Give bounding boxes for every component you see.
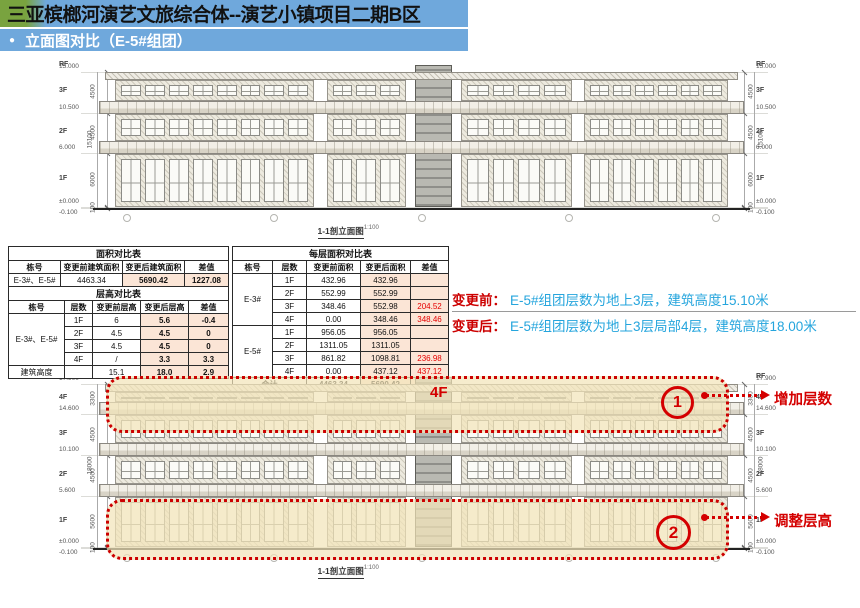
- subtitle-bar: ● 立面图对比（E-5#组团）: [0, 29, 468, 51]
- window: [703, 119, 722, 137]
- core: [415, 65, 452, 207]
- window: [590, 85, 609, 96]
- table-cell: 建筑高度: [9, 366, 65, 379]
- table-cell: 4.5: [93, 327, 141, 340]
- ornband: [99, 443, 744, 456]
- wallseg: [115, 154, 314, 207]
- table-cell: 1098.81: [361, 352, 411, 365]
- table-cell: 4.5: [141, 340, 189, 353]
- table-cell: 6: [93, 314, 141, 327]
- slide: 三亚槟榔河演艺文旅综合体--演艺小镇项目二期B区 ● 立面图对比（E-5#组团）…: [0, 0, 860, 608]
- ornband: [99, 141, 744, 154]
- window: [241, 461, 261, 479]
- window: [681, 159, 700, 202]
- table-cell: 348.46: [361, 313, 411, 326]
- rdim: 15100: [87, 113, 94, 165]
- vdim: [744, 384, 745, 548]
- note-after: 变更后： E-5#组团层数为地上3层局部4层，建筑高度18.00米: [452, 312, 856, 337]
- window: [658, 159, 677, 202]
- table-cell: 956.05: [361, 326, 411, 339]
- window: [681, 85, 700, 96]
- highlight-box-4f: [106, 376, 729, 433]
- ornband: [99, 101, 744, 114]
- lvl-name: RF: [756, 373, 765, 380]
- table-cell: 3F: [273, 352, 307, 365]
- window: [264, 85, 284, 96]
- window: [380, 85, 400, 96]
- window: [544, 461, 566, 479]
- window: [380, 119, 400, 137]
- table-cell: 0.00: [307, 313, 361, 326]
- table-cell: 552.99: [307, 287, 361, 300]
- floor-4f-label: 4F: [430, 384, 448, 401]
- window: [544, 85, 566, 96]
- table-cell: 层数: [273, 261, 307, 274]
- bubble: [565, 214, 573, 222]
- window: [380, 461, 400, 479]
- lvl-name: 3F: [59, 430, 67, 437]
- bubble: [712, 214, 720, 222]
- area-comparison-table: 面积对比表栋号变更前建筑面积变更后建筑面积差值E-3#、E-5#4463.345…: [8, 246, 229, 287]
- window: [288, 159, 308, 202]
- window: [493, 461, 515, 479]
- floor-area-comparison-table: 每层面积对比表栋号层数变更前面积变更后面积差值E-3#1F432.96432.9…: [232, 246, 449, 391]
- arrow-line-2: [706, 516, 763, 519]
- table-cell: 层数: [65, 301, 93, 314]
- table-cell: 1F: [273, 326, 307, 339]
- wallseg: [584, 80, 728, 101]
- lvl-name: RF: [59, 61, 68, 68]
- window: [217, 159, 237, 202]
- window: [635, 85, 654, 96]
- window: [613, 85, 632, 96]
- rdim: 4500: [748, 106, 755, 158]
- window: [333, 119, 353, 137]
- wallseg: [115, 80, 314, 101]
- table-cell: 432.96: [361, 274, 411, 287]
- table-cell: [411, 287, 449, 300]
- wallseg: [327, 114, 407, 142]
- window: [681, 119, 700, 137]
- lvl-elev: -0.100: [756, 209, 798, 216]
- drawing-scale: 1:100: [364, 225, 379, 231]
- window: [467, 461, 489, 479]
- lvl-name: 4F: [59, 394, 67, 401]
- window: [193, 85, 213, 96]
- window: [241, 119, 261, 137]
- window: [467, 85, 489, 96]
- table-cell: 2F: [65, 327, 93, 340]
- table-cell: 1F: [273, 274, 307, 287]
- wallseg: [327, 456, 407, 484]
- table-cell: 差值: [411, 261, 449, 274]
- wallseg: [461, 80, 571, 101]
- window: [333, 159, 353, 202]
- table-cell: 204.52: [411, 300, 449, 313]
- window: [467, 159, 489, 202]
- lvl-elev: 10.500: [756, 104, 798, 111]
- ornband: [99, 484, 744, 497]
- window: [518, 461, 540, 479]
- table-cell: 1227.08: [185, 274, 229, 287]
- window: [467, 119, 489, 137]
- window: [121, 159, 141, 202]
- window: [635, 159, 654, 202]
- table-cell: 432.96: [307, 274, 361, 287]
- table-cell: /: [93, 353, 141, 366]
- lvl-name: 2F: [59, 128, 67, 135]
- wallseg: [584, 456, 728, 484]
- window: [703, 159, 722, 202]
- rdim: 18000: [758, 439, 765, 491]
- window: [169, 159, 189, 202]
- window: [681, 461, 700, 479]
- drawing-scale: 1:100: [364, 565, 379, 571]
- table-cell: 每层面积对比表: [233, 247, 449, 261]
- rdim: 18000: [87, 439, 94, 491]
- window: [121, 85, 141, 96]
- window: [193, 119, 213, 137]
- window: [703, 461, 722, 479]
- window: [590, 159, 609, 202]
- window: [169, 461, 189, 479]
- table-cell: 3.3: [189, 353, 229, 366]
- table-cell: 5690.42: [123, 274, 185, 287]
- table-cell: 变更前层高: [93, 301, 141, 314]
- rdim: 4500: [748, 449, 755, 501]
- window: [264, 119, 284, 137]
- note-before-label: 变更前：: [452, 289, 506, 309]
- window: [613, 159, 632, 202]
- window: [544, 159, 566, 202]
- table-cell: 2F: [273, 339, 307, 352]
- window: [635, 119, 654, 137]
- window: [264, 159, 284, 202]
- lvl-elev: ±0.000: [756, 198, 798, 205]
- window: [590, 461, 609, 479]
- change-notes: 变更前： E-5#组团层数为地上3层，建筑高度15.10米 变更后： E-5#组…: [452, 286, 856, 337]
- lvl-name: 3F: [756, 87, 764, 94]
- callout-circle-2: 2: [656, 515, 691, 550]
- gnd-line: [93, 208, 750, 210]
- window: [544, 119, 566, 137]
- lvl-name: 3F: [756, 430, 764, 437]
- window: [356, 159, 376, 202]
- table-cell: 2F: [273, 287, 307, 300]
- window: [613, 119, 632, 137]
- window: [288, 85, 308, 96]
- window: [145, 85, 165, 96]
- table-cell: 面积对比表: [9, 247, 229, 261]
- lvl-name: 2F: [59, 471, 67, 478]
- window: [288, 119, 308, 137]
- window: [518, 159, 540, 202]
- table-cell: 变更前面积: [307, 261, 361, 274]
- table-cell: 差值: [185, 261, 229, 274]
- table-cell: 变更后面积: [361, 261, 411, 274]
- page-title: 三亚槟榔河演艺文旅综合体--演艺小镇项目二期B区: [0, 0, 420, 27]
- window: [658, 461, 677, 479]
- vdim: [107, 72, 108, 208]
- wallseg: [461, 154, 571, 207]
- lvl-elev: -0.100: [756, 549, 798, 556]
- annotation-adjust-height: 调整层高: [774, 510, 832, 531]
- table-cell: E-5#: [233, 326, 273, 378]
- window: [217, 119, 237, 137]
- drawing-caption: 1-1剖立面图 1:100: [318, 565, 364, 579]
- table-cell: 4463.34: [61, 274, 123, 287]
- table-cell: E-3#、E-5#: [9, 314, 65, 366]
- table-cell: 栋号: [233, 261, 273, 274]
- bullet-icon: ●: [0, 35, 25, 46]
- window: [241, 85, 261, 96]
- table-cell: [65, 366, 93, 379]
- title-bar: 三亚槟榔河演艺文旅综合体--演艺小镇项目二期B区: [0, 0, 468, 27]
- window: [613, 461, 632, 479]
- table-cell: 4.5: [93, 340, 141, 353]
- table-cell: 5.6: [141, 314, 189, 327]
- window: [217, 85, 237, 96]
- bubble: [123, 214, 131, 222]
- table-cell: 变更后层高: [141, 301, 189, 314]
- rdim: 15100: [758, 113, 765, 165]
- window: [264, 461, 284, 479]
- window: [121, 119, 141, 137]
- table-cell: 348.46: [307, 300, 361, 313]
- bubble: [418, 214, 426, 222]
- note-before-text: E-5#组团层数为地上3层，建筑高度15.10米: [510, 289, 769, 309]
- bubble: [270, 214, 278, 222]
- wallseg: [115, 456, 314, 484]
- table-cell: 栋号: [9, 261, 61, 274]
- table-cell: 4F: [273, 313, 307, 326]
- table-cell: 层高对比表: [9, 287, 229, 301]
- table-cell: 1311.05: [307, 339, 361, 352]
- table-cell: 3F: [65, 340, 93, 353]
- window: [145, 119, 165, 137]
- table-cell: [411, 326, 449, 339]
- table-cell: 栋号: [9, 301, 65, 314]
- window: [169, 85, 189, 96]
- wallseg: [327, 80, 407, 101]
- elevation-before-drawing: 15.000RF15.000RF10.5003F10.5003F6.0002F6…: [55, 60, 800, 238]
- wallseg: [115, 114, 314, 142]
- window: [169, 119, 189, 137]
- window: [217, 461, 237, 479]
- wallseg: [461, 114, 571, 142]
- table-cell: [411, 339, 449, 352]
- table-cell: 4.5: [141, 327, 189, 340]
- table-cell: 956.05: [307, 326, 361, 339]
- window: [333, 461, 353, 479]
- window: [703, 85, 722, 96]
- table-cell: 差值: [189, 301, 229, 314]
- section-title: 立面图对比（E-5#组团）: [25, 30, 192, 51]
- table-cell: [411, 274, 449, 287]
- table-cell: E-3#、E-5#: [9, 274, 61, 287]
- table-cell: 变更后建筑面积: [123, 261, 185, 274]
- note-before: 变更前： E-5#组团层数为地上3层，建筑高度15.10米: [452, 286, 856, 312]
- table-cell: 1F: [65, 314, 93, 327]
- lvl-name: 3F: [59, 87, 67, 94]
- window: [193, 461, 213, 479]
- lvl-name: RF: [756, 61, 765, 68]
- table-cell: 变更前建筑面积: [61, 261, 123, 274]
- window: [518, 119, 540, 137]
- window: [145, 159, 165, 202]
- wallseg: [584, 154, 728, 207]
- table-cell: 552.98: [361, 300, 411, 313]
- window: [356, 119, 376, 137]
- drawing-caption: 1-1剖立面图 1:100: [318, 225, 364, 239]
- lvl-name: 1F: [59, 517, 67, 524]
- window: [658, 85, 677, 96]
- note-after-text: E-5#组团层数为地上3层局部4层，建筑高度18.00米: [510, 315, 817, 335]
- annotation-add-floors: 增加层数: [774, 388, 832, 409]
- window: [121, 461, 141, 479]
- window: [635, 461, 654, 479]
- vdim: [97, 72, 98, 208]
- window: [493, 85, 515, 96]
- table-cell: 348.46: [411, 313, 449, 326]
- lvl-name: 1F: [756, 175, 764, 182]
- vdim: [744, 72, 745, 208]
- window: [493, 159, 515, 202]
- window: [493, 119, 515, 137]
- window: [288, 461, 308, 479]
- wallseg: [584, 114, 728, 142]
- lvl-elev: ±0.000: [756, 538, 798, 545]
- table-cell: 1311.05: [361, 339, 411, 352]
- table-cell: 0: [189, 327, 229, 340]
- parapet: [105, 72, 738, 80]
- window: [658, 119, 677, 137]
- window: [193, 159, 213, 202]
- window: [356, 461, 376, 479]
- arrow-line-1: [706, 394, 763, 397]
- callout-circle-1: 1: [661, 386, 694, 419]
- window: [380, 159, 400, 202]
- table-cell: 552.99: [361, 287, 411, 300]
- table-cell: 3.3: [141, 353, 189, 366]
- height-comparison-table: 层高对比表栋号层数变更前层高变更后层高差值E-3#、E-5#1F65.6-0.4…: [8, 286, 229, 379]
- note-after-label: 变更后：: [452, 315, 506, 335]
- arrow-head-2: [761, 512, 770, 522]
- table-cell: 236.98: [411, 352, 449, 365]
- table-cell: 861.82: [307, 352, 361, 365]
- window: [590, 119, 609, 137]
- table-cell: 0: [189, 340, 229, 353]
- lvl-name: 1F: [59, 175, 67, 182]
- table-cell: 4F: [65, 353, 93, 366]
- wallseg: [327, 154, 407, 207]
- window: [241, 159, 261, 202]
- arrow-head-1: [761, 390, 770, 400]
- table-cell: 3F: [273, 300, 307, 313]
- window: [333, 85, 353, 96]
- highlight-box-1f: [106, 499, 729, 560]
- table-cell: E-3#: [233, 274, 273, 326]
- window: [356, 85, 376, 96]
- window: [145, 461, 165, 479]
- wallseg: [461, 456, 571, 484]
- window: [518, 85, 540, 96]
- table-cell: -0.4: [189, 314, 229, 327]
